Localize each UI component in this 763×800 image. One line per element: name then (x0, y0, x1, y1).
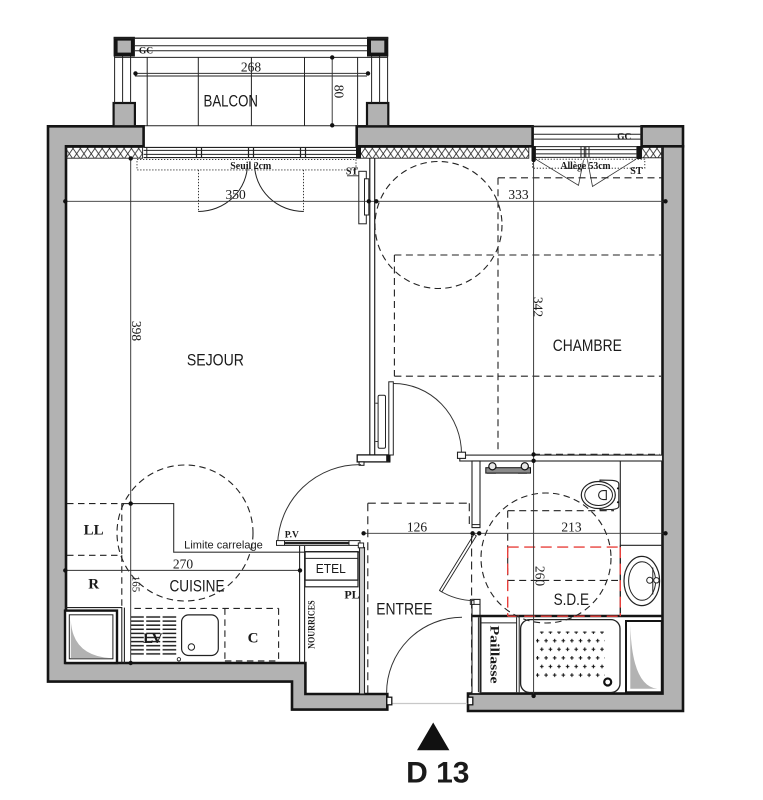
svg-text:213: 213 (561, 520, 582, 535)
svg-text:LV: LV (143, 631, 163, 647)
svg-text:D 13: D 13 (406, 756, 469, 789)
svg-text:P.V: P.V (285, 530, 299, 540)
svg-text:333: 333 (508, 187, 529, 202)
svg-text:R: R (88, 577, 99, 593)
svg-text:350: 350 (225, 187, 246, 202)
svg-text:GC: GC (139, 46, 153, 56)
svg-text:NOURRICES: NOURRICES (308, 600, 318, 649)
svg-text:126: 126 (407, 520, 428, 535)
svg-text:PL: PL (344, 588, 359, 602)
svg-text:Limite carrelage: Limite carrelage (184, 539, 263, 551)
svg-text:398: 398 (129, 321, 144, 342)
svg-text:BALCON: BALCON (204, 92, 259, 111)
svg-text:LL: LL (84, 523, 104, 539)
svg-text:ETEL: ETEL (316, 561, 346, 576)
svg-text:S.D.E: S.D.E (554, 590, 589, 609)
svg-text:260: 260 (533, 566, 548, 587)
svg-text:Seuil 2cm: Seuil 2cm (230, 161, 272, 172)
svg-text:ST: ST (346, 167, 359, 178)
svg-text:268: 268 (241, 60, 262, 75)
svg-text:ST: ST (630, 166, 643, 177)
svg-text:CUISINE: CUISINE (170, 576, 225, 595)
svg-text:ENTREE: ENTREE (376, 600, 432, 619)
svg-text:Allège 53cm: Allège 53cm (561, 161, 612, 172)
svg-text:Paillasse: Paillasse (488, 626, 503, 684)
svg-text:165: 165 (130, 576, 142, 593)
svg-text:342: 342 (530, 297, 545, 317)
svg-text:270: 270 (173, 557, 194, 572)
svg-text:80: 80 (332, 85, 347, 99)
svg-text:GC: GC (617, 133, 631, 143)
svg-text:CHAMBRE: CHAMBRE (553, 336, 622, 355)
svg-text:C: C (248, 630, 259, 646)
svg-text:SEJOUR: SEJOUR (187, 351, 244, 370)
